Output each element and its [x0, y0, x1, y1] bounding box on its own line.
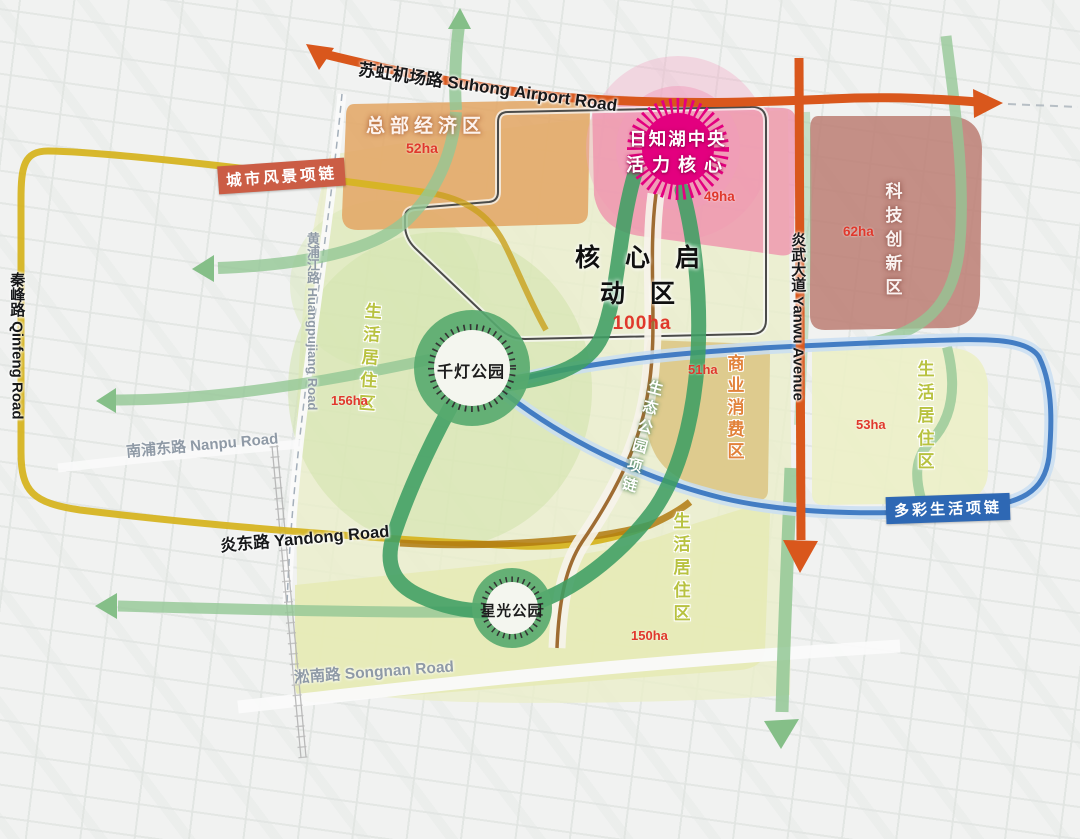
yanwu-road-label: 炎武大道 Yanwu Avenue	[789, 232, 806, 401]
living-east-label: 生活居住区	[914, 360, 934, 475]
plan-map: 苏虹机场路 Suhong Airport Road 秦峰路 Qinfeng Ro…	[0, 0, 1080, 759]
living-south-area: 150ha	[631, 628, 668, 643]
living-south-label: 生活居住区	[670, 512, 690, 627]
living-west-area: 156ha	[331, 393, 368, 408]
colorful-life-necklace-label: 多彩生活项链	[886, 493, 1011, 524]
commerce-zone-label: 商业消费区	[724, 354, 744, 464]
living-east-area: 53ha	[856, 417, 886, 432]
hq-zone-label: 总部经济区	[366, 116, 486, 138]
commerce-zone-area: 51ha	[688, 362, 718, 377]
core-startup-label: 核 心 启 动 区 100ha	[552, 238, 732, 335]
hub-core-label: 日知湖中央 活力核心	[597, 126, 759, 177]
huangpujiang-road-label: 黄浦江路 Huangpujiang Road	[304, 232, 319, 410]
zone-living-east	[812, 345, 988, 505]
tech-zone-area: 62ha	[843, 224, 874, 239]
hq-zone-area: 52ha	[406, 140, 438, 156]
qiandeng-park-label: 千灯公园	[437, 358, 505, 382]
qinfeng-road-label: 秦峰路 Qinfeng Road	[8, 272, 25, 420]
xingguang-park-label: 星光公园	[481, 600, 543, 621]
tech-zone-label: 科技创新区	[882, 182, 902, 302]
hub-area: 49ha	[704, 189, 735, 204]
